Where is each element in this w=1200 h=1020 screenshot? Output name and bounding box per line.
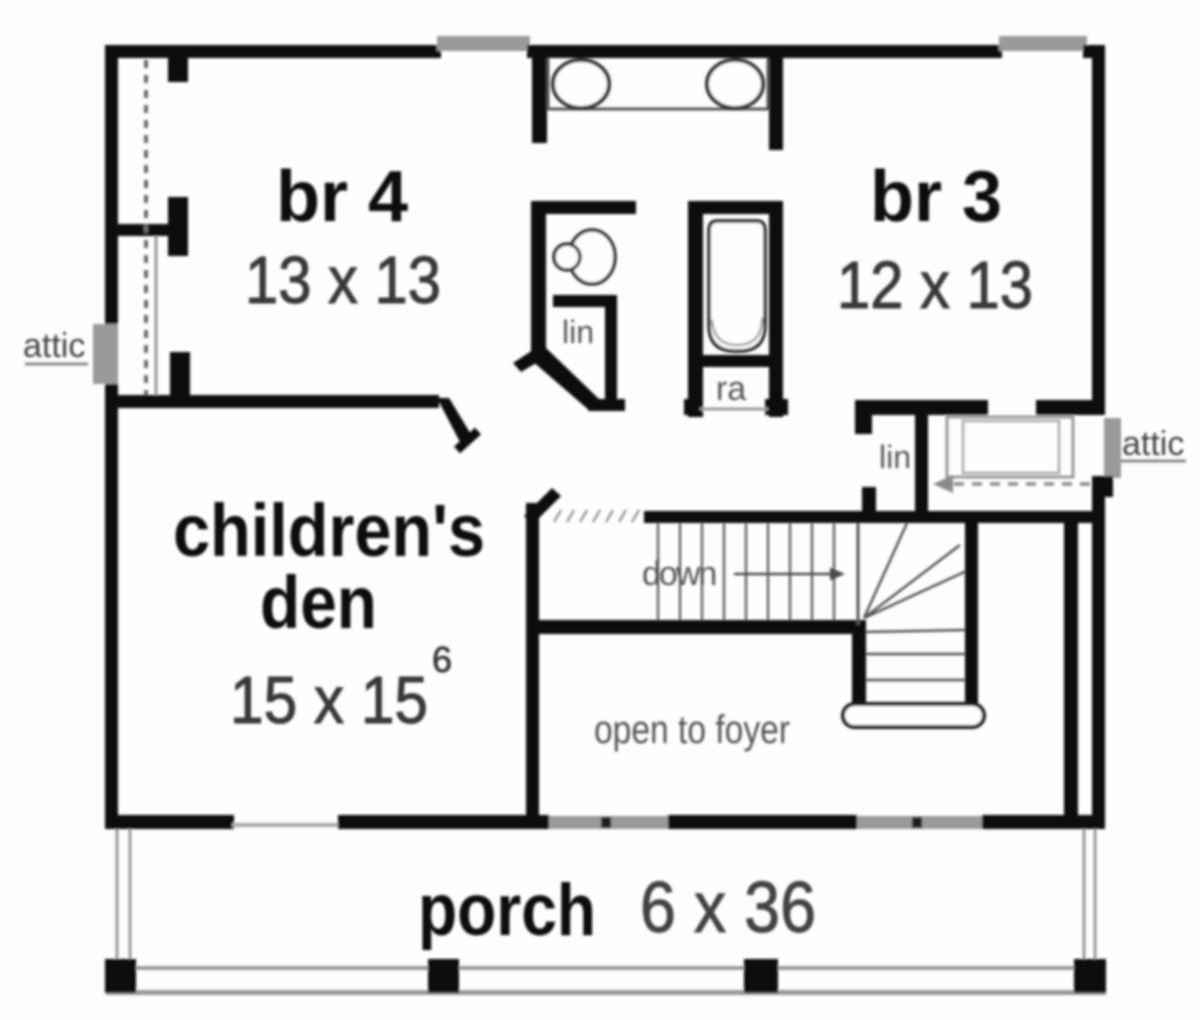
- svg-text:attic: attic: [1122, 425, 1184, 463]
- svg-text:down: down: [642, 555, 715, 593]
- svg-text:porch: porch: [418, 870, 596, 951]
- svg-text:12 x 13: 12 x 13: [837, 248, 1033, 323]
- svg-text:ra: ra: [716, 370, 746, 408]
- svg-text:attic: attic: [23, 327, 85, 365]
- svg-text:br 3: br 3: [870, 157, 1002, 237]
- svg-text:lin: lin: [562, 314, 594, 350]
- svg-text:br 4: br 4: [276, 157, 408, 237]
- svg-text:6 x 36: 6 x 36: [640, 868, 816, 948]
- svg-text:children's: children's: [173, 489, 485, 572]
- svg-text:lin: lin: [879, 439, 911, 475]
- svg-text:13 x 13: 13 x 13: [245, 243, 441, 318]
- svg-text:open to foyer: open to foyer: [594, 708, 790, 752]
- svg-text:15 x 15: 15 x 15: [230, 663, 428, 738]
- svg-text:den: den: [260, 561, 377, 644]
- svg-text:6: 6: [432, 639, 452, 680]
